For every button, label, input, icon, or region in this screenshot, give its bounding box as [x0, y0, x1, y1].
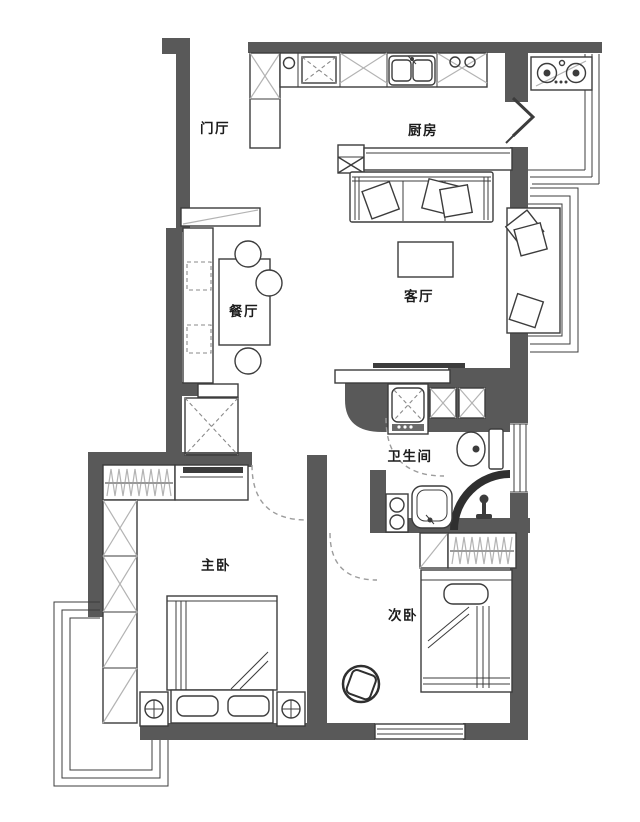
tv-icon: [373, 363, 465, 368]
room-label-second-bedroom: 次卧: [388, 604, 418, 624]
walls: [88, 38, 602, 740]
room-label-living-room: 客厅: [404, 285, 434, 305]
nightstand-right: [277, 692, 305, 726]
chaise-daybed: [506, 208, 560, 333]
toilet: [457, 429, 503, 469]
room-label-kitchen: 厨房: [408, 119, 438, 139]
bathroom-window: [510, 423, 528, 493]
room-label-dining-room: 餐厅: [229, 300, 259, 320]
floor-plan-canvas: [0, 0, 640, 822]
single-bed: [421, 570, 512, 692]
dining-bench: [183, 228, 213, 383]
bar-console: [338, 145, 512, 173]
bifold-door-icon: [506, 98, 533, 143]
pillow-icon: [440, 185, 472, 217]
pillow-icon: [177, 696, 218, 716]
hanging-wardrobe: [103, 465, 175, 500]
second-bedroom-door-swing: [330, 533, 377, 580]
wardrobe-column: [103, 500, 137, 723]
chair-icon: [235, 348, 261, 374]
nightstand-left: [140, 692, 168, 726]
kitchen-counter: [280, 53, 487, 87]
shower-mixer-icon: [480, 495, 489, 504]
room-label-bathroom: 卫生间: [388, 445, 433, 465]
pillow-icon: [228, 696, 269, 716]
shoe-cabinet: [250, 53, 280, 148]
room-label-entry-hall: 门厅: [200, 117, 230, 137]
dresser: [175, 465, 248, 500]
floor-plan: 门厅 厨房 餐厅 客厅 卫生间 主卧 次卧: [0, 0, 640, 822]
chair-icon: [235, 241, 261, 267]
room-label-master-bedroom: 主卧: [201, 554, 231, 574]
second-bedroom-window: [375, 724, 465, 739]
washing-machine: [388, 384, 428, 434]
bath-side-cabinet: [386, 494, 408, 532]
wash-basin: [412, 486, 452, 528]
armchair: [343, 666, 379, 702]
display-shelf: [181, 208, 260, 226]
chair-icon: [256, 270, 282, 296]
pillow-icon: [514, 223, 547, 256]
master-door-swing: [252, 465, 307, 520]
pillow-icon: [444, 584, 488, 604]
double-bed: [167, 596, 277, 723]
coffee-table: [398, 242, 453, 277]
second-wardrobe: [420, 533, 516, 568]
sofa: [350, 172, 493, 222]
gas-cooktop: [531, 57, 592, 90]
tv-cabinet: [335, 363, 465, 383]
